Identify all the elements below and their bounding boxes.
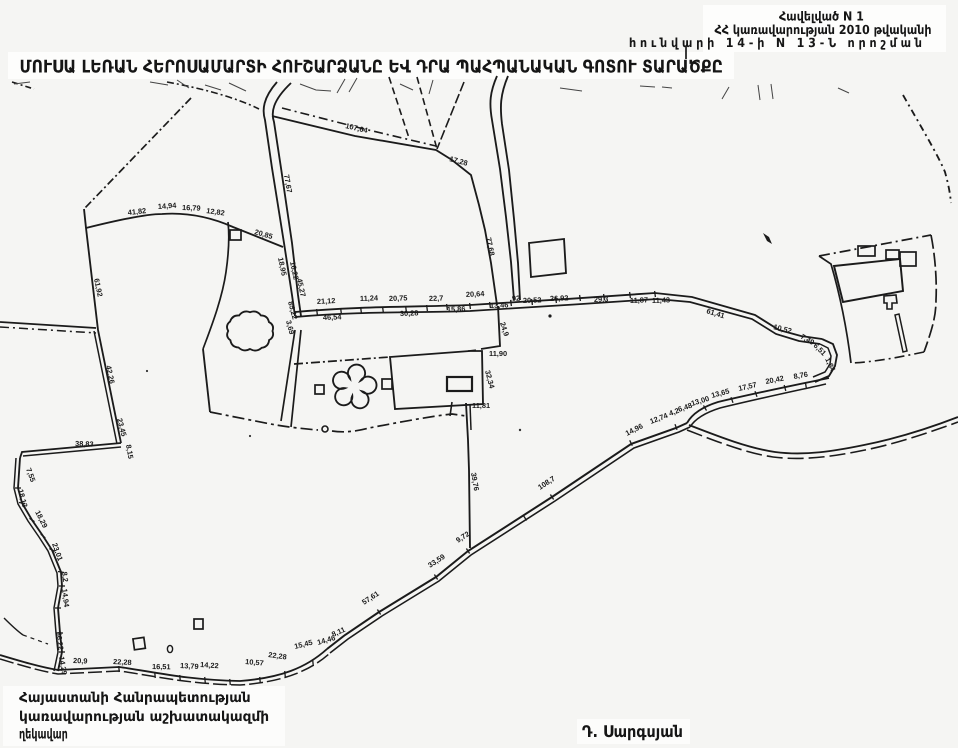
svg-text:10,57: 10,57 <box>245 657 264 668</box>
svg-text:11,81: 11,81 <box>472 401 490 410</box>
svg-text:41,82: 41,82 <box>127 206 146 217</box>
svg-text:13,46: 13,46 <box>490 300 509 310</box>
svg-text:,92: ,92 <box>510 294 521 303</box>
svg-text:11,43: 11,43 <box>652 295 670 305</box>
svg-text:11,87: 11,87 <box>630 295 648 305</box>
svg-text:16,51: 16,51 <box>152 662 171 671</box>
svg-text:15,86: 15,86 <box>447 304 466 314</box>
svg-text:22,28: 22,28 <box>113 657 132 667</box>
svg-text:20,9: 20,9 <box>73 656 88 665</box>
svg-text:38,83: 38,83 <box>75 439 94 449</box>
svg-text:20,75: 20,75 <box>389 293 408 303</box>
svg-text:20,52: 20,52 <box>523 295 542 305</box>
svg-text:20,64: 20,64 <box>466 289 486 299</box>
svg-text:46,54: 46,54 <box>323 312 343 322</box>
svg-text:21,12: 21,12 <box>317 296 336 306</box>
svg-text:16,79: 16,79 <box>182 203 201 213</box>
svg-text:26,92: 26,92 <box>550 293 569 303</box>
svg-text:29,3: 29,3 <box>594 295 609 304</box>
svg-text:13,79: 13,79 <box>180 661 199 671</box>
svg-text:11,24: 11,24 <box>360 293 379 303</box>
svg-text:22,7: 22,7 <box>429 294 444 303</box>
svg-text:8,2: 8,2 <box>60 571 70 582</box>
svg-text:30,28: 30,28 <box>400 308 419 318</box>
svg-text:14,22: 14,22 <box>200 660 219 670</box>
svg-text:14,94: 14,94 <box>158 201 178 211</box>
svg-text:11,90: 11,90 <box>489 349 507 358</box>
